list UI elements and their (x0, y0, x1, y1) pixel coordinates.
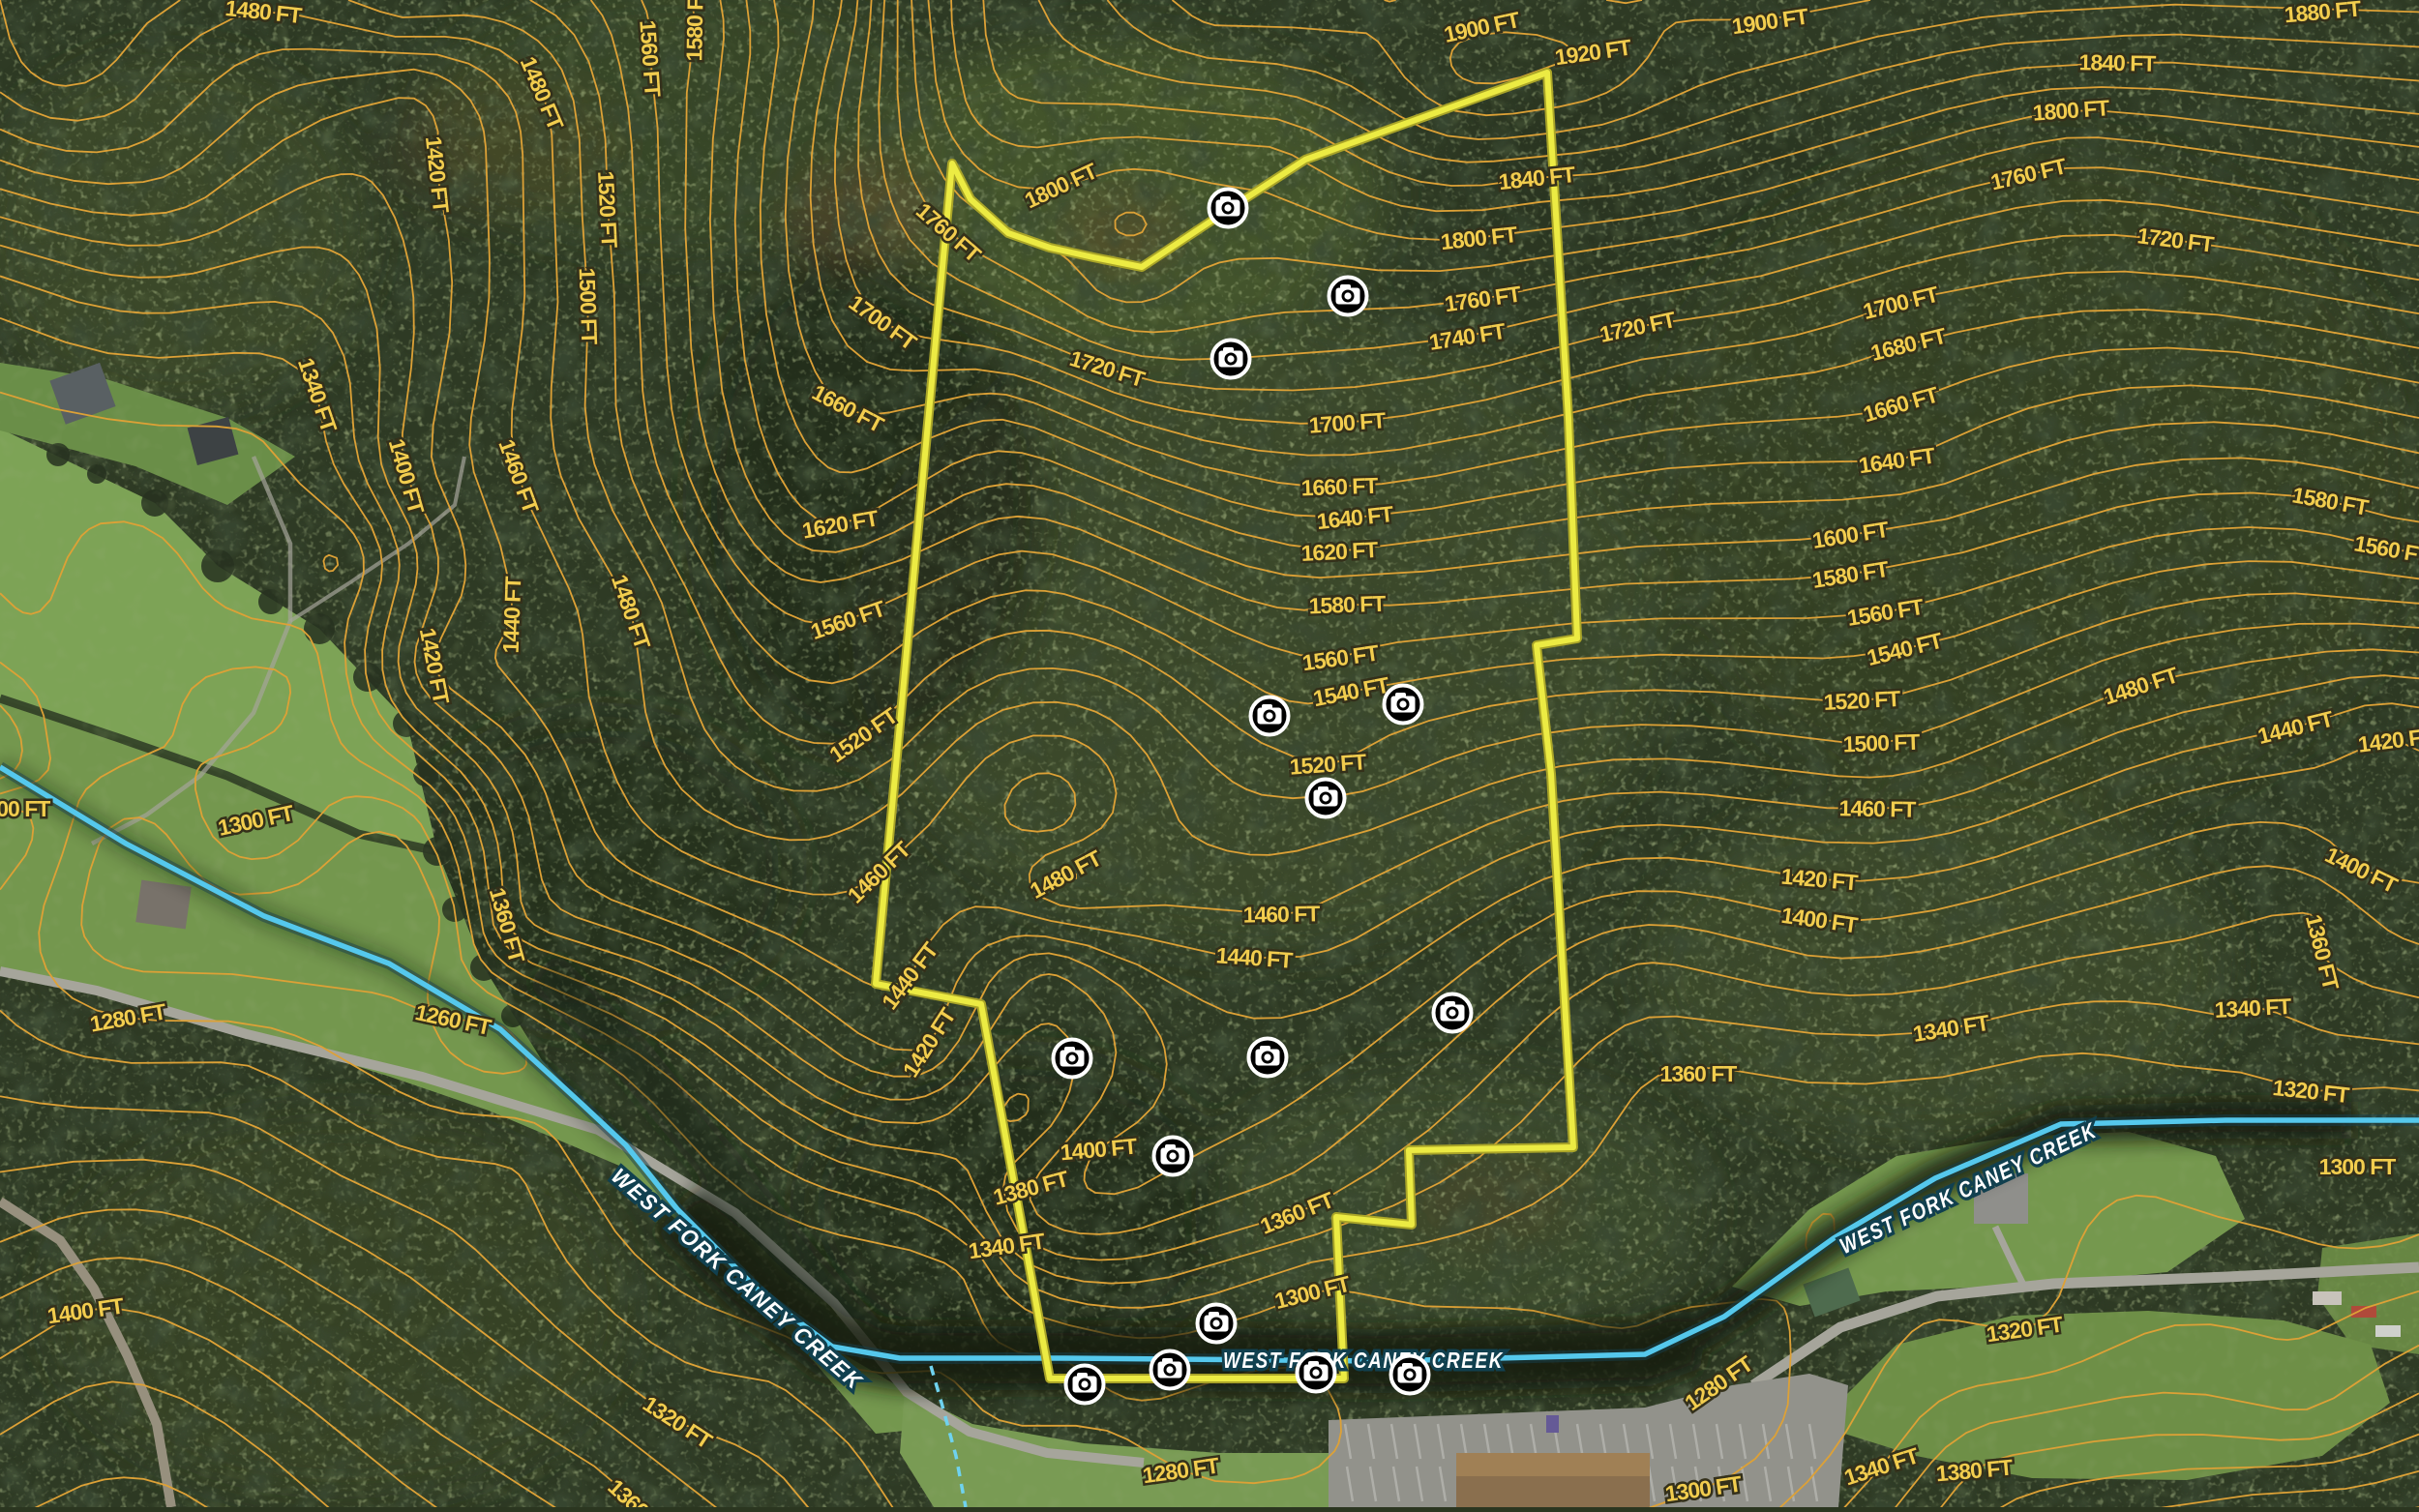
svg-text:1460 FT: 1460 FT (1838, 795, 1916, 821)
svg-text:1440 FT: 1440 FT (1215, 942, 1294, 972)
svg-text:1460 FT: 1460 FT (1242, 901, 1320, 927)
svg-text:1520 FT: 1520 FT (1823, 686, 1901, 715)
svg-text:1840 FT: 1840 FT (2078, 49, 2156, 75)
svg-text:1660 FT: 1660 FT (1300, 473, 1378, 501)
svg-text:1580 FT: 1580 FT (1308, 591, 1386, 619)
svg-text:1800 FT: 1800 FT (2032, 95, 2110, 125)
svg-text:WEST FORK CANEY CREEK: WEST FORK CANEY CREEK (1223, 1348, 1504, 1373)
svg-text:1360 FT: 1360 FT (1660, 1061, 1738, 1086)
svg-text:1340 FT: 1340 FT (2214, 993, 2292, 1023)
svg-text:1520 FT: 1520 FT (1289, 749, 1367, 779)
svg-text:1300 FT: 1300 FT (0, 796, 50, 821)
svg-text:1700 FT: 1700 FT (1308, 407, 1387, 437)
svg-text:1520 FT: 1520 FT (593, 170, 622, 249)
svg-text:1620 FT: 1620 FT (1300, 537, 1379, 566)
svg-text:1500 FT: 1500 FT (1842, 729, 1920, 757)
svg-text:1580 FT: 1580 FT (681, 0, 707, 62)
svg-text:1500 FT: 1500 FT (575, 267, 603, 344)
svg-text:1440 FT: 1440 FT (498, 576, 526, 653)
svg-text:1560 FT: 1560 FT (635, 19, 665, 98)
svg-text:1300 FT: 1300 FT (2319, 1154, 2397, 1179)
